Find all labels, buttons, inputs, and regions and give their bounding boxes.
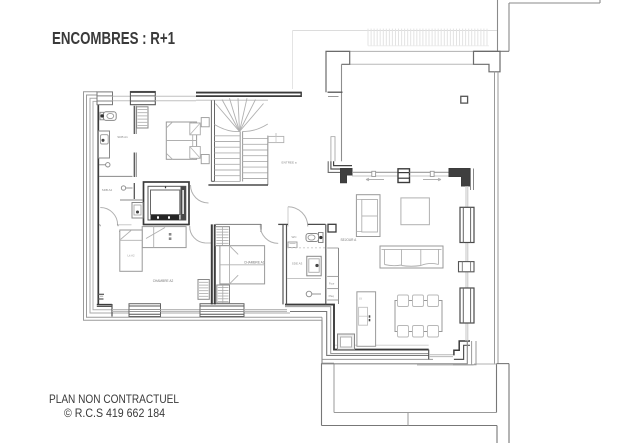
svg-text:SDB A2: SDB A2 <box>102 188 113 192</box>
svg-text:Four: Four <box>329 282 334 286</box>
svg-text:CHAMBRE A2: CHAMBRE A2 <box>153 279 174 283</box>
svg-text:SDB A1: SDB A1 <box>117 135 128 139</box>
svg-text:WC: WC <box>292 235 298 239</box>
svg-text:Lit A2: Lit A2 <box>128 254 135 258</box>
svg-text:SEJOUR A: SEJOUR A <box>341 238 358 242</box>
svg-text:CHAMBRE A1: CHAMBRE A1 <box>244 260 265 264</box>
svg-text:SDE A3: SDE A3 <box>292 262 303 266</box>
svg-text:Plaq: Plaq <box>329 294 335 298</box>
svg-text:LV: LV <box>359 297 362 301</box>
svg-text:ENTREE a: ENTREE a <box>282 161 297 165</box>
